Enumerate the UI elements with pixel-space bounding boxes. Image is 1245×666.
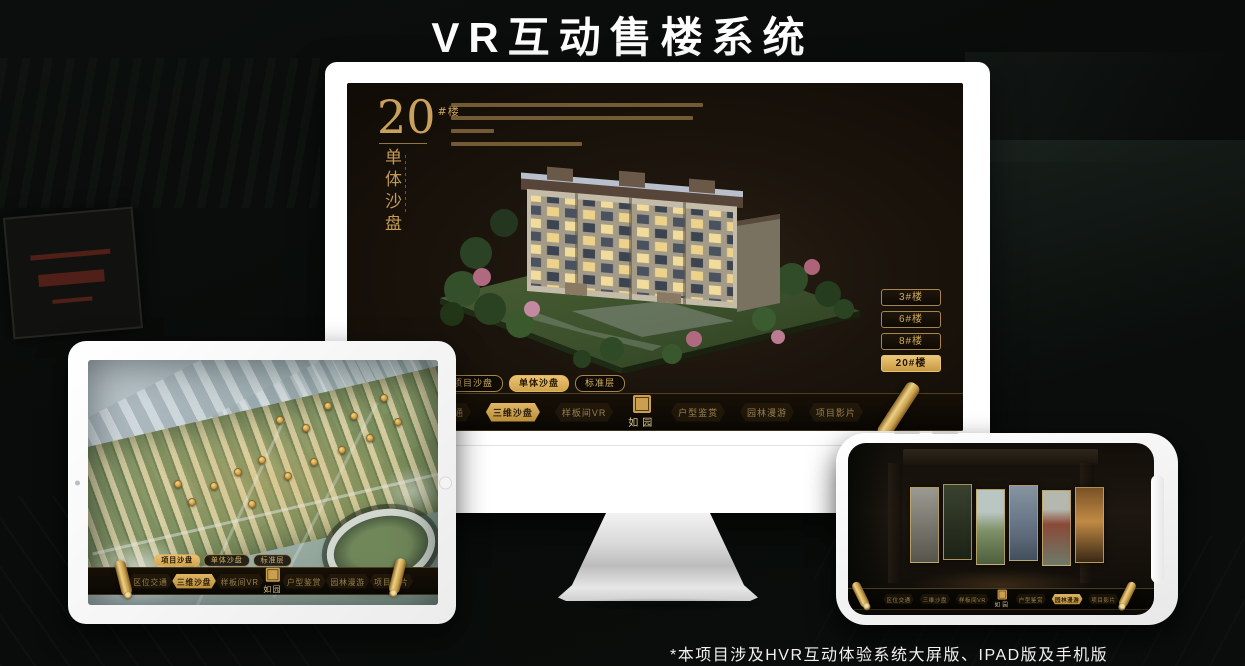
background-plaque (3, 207, 143, 340)
seal-icon (633, 395, 651, 413)
nav-item-unit-plans[interactable]: 户型鉴赏 (1015, 594, 1046, 604)
nav-item-showroom-vr[interactable]: 样板间VR (216, 574, 264, 589)
main-navbar: 区位交通 三维沙盘 样板间VR 如园 户型鉴赏 园林漫游 项目影片 (88, 567, 438, 595)
scene-card[interactable] (943, 484, 972, 560)
floor-selector: 3#楼 6#楼 8#楼 20#楼 (881, 289, 941, 377)
nav-item-unit-plans[interactable]: 户型鉴赏 (671, 403, 725, 422)
volume-button (894, 431, 920, 434)
brand-logo: 如园 (263, 568, 282, 594)
floor-button-3[interactable]: 3#楼 (881, 289, 941, 306)
poster: VR互动售楼系统 20#楼 单体沙盘 (0, 0, 1245, 666)
floor-button-20[interactable]: 20#楼 (881, 355, 941, 372)
nav-item-location[interactable]: 区位交通 (129, 574, 173, 589)
tab-standard-floor[interactable]: 标准层 (575, 375, 625, 392)
nav-item-3d-sandbox[interactable]: 三维沙盘 (486, 403, 540, 422)
monitor-stand-shadow (548, 598, 772, 612)
nav-item-showroom-vr[interactable]: 样板间VR (956, 594, 989, 604)
seal-icon (998, 590, 1008, 600)
building-number: 20 (377, 93, 436, 141)
nav-item-project-film[interactable]: 项目影片 (1088, 594, 1119, 604)
building-model[interactable] (432, 161, 872, 373)
floor-button-6[interactable]: 6#楼 (881, 311, 941, 328)
tab-standard-floor[interactable]: 标准层 (253, 554, 291, 566)
scene-card[interactable] (910, 487, 939, 563)
nav-item-3d-sandbox[interactable]: 三维沙盘 (919, 594, 950, 604)
seal-icon (266, 568, 280, 582)
sandbox-sub-tabs: 项目沙盘 单体沙盘 标准层 (154, 552, 374, 565)
scene-gallery (910, 487, 1104, 563)
scene-card[interactable] (1009, 485, 1038, 561)
footnote-text: *本项目涉及HVR互动体验系统大屏版、IPAD版及手机版 (670, 641, 1108, 665)
tab-single-sandbox[interactable]: 单体沙盘 (509, 375, 569, 392)
camera-icon (75, 480, 80, 485)
heading-subtitle: 单体沙盘 (379, 148, 404, 236)
phone-notch (1151, 475, 1164, 583)
nav-item-unit-plans[interactable]: 户型鉴赏 (282, 574, 326, 589)
nav-item-location[interactable]: 区位交通 (883, 594, 914, 604)
page-title: VR互动售楼系统 (0, 4, 1245, 65)
brand-logo: 如园 (628, 395, 656, 429)
description-text-block (451, 103, 703, 155)
home-button[interactable] (439, 476, 452, 489)
background-texture (965, 52, 1245, 162)
nav-item-showroom-vr[interactable]: 样板间VR (555, 403, 614, 422)
nav-item-project-film[interactable]: 项目影片 (809, 403, 863, 422)
gate-column (888, 463, 902, 583)
nav-item-3d-sandbox[interactable]: 三维沙盘 (172, 574, 216, 589)
sandbox-sub-tabs: 项目沙盘 单体沙盘 标准层 (443, 375, 625, 392)
nav-item-garden-tour[interactable]: 园林漫游 (1052, 594, 1083, 604)
phone-screen: 区位交通 三维沙盘 样板间VR 如园 户型鉴赏 园林漫游 项目影片 (848, 443, 1154, 615)
volume-button (932, 431, 958, 434)
scene-card[interactable] (976, 489, 1005, 565)
phone-device: 区位交通 三维沙盘 样板间VR 如园 户型鉴赏 园林漫游 项目影片 (836, 433, 1178, 625)
tablet-screen: 项目沙盘 单体沙盘 标准层 区位交通 三维沙盘 样板间VR 如园 (88, 360, 438, 605)
tab-single-sandbox[interactable]: 单体沙盘 (204, 554, 250, 566)
nav-item-garden-tour[interactable]: 园林漫游 (326, 574, 370, 589)
floor-button-8[interactable]: 8#楼 (881, 333, 941, 350)
scene-card[interactable] (1042, 490, 1071, 566)
monitor-stand (558, 513, 758, 601)
brand-logo: 如园 (995, 590, 1010, 608)
heading-deco-line (405, 155, 406, 213)
background-texture (975, 140, 1245, 450)
tab-project-sandbox[interactable]: 项目沙盘 (154, 554, 200, 566)
background-texture (0, 58, 320, 208)
scene-card[interactable] (1075, 487, 1104, 563)
nav-item-garden-tour[interactable]: 园林漫游 (740, 403, 794, 422)
tablet-device: 项目沙盘 单体沙盘 标准层 区位交通 三维沙盘 样板间VR 如园 (68, 341, 456, 624)
main-navbar: 区位交通 三维沙盘 样板间VR 如园 户型鉴赏 园林漫游 项目影片 (848, 588, 1154, 610)
gate-beam (903, 449, 1098, 465)
